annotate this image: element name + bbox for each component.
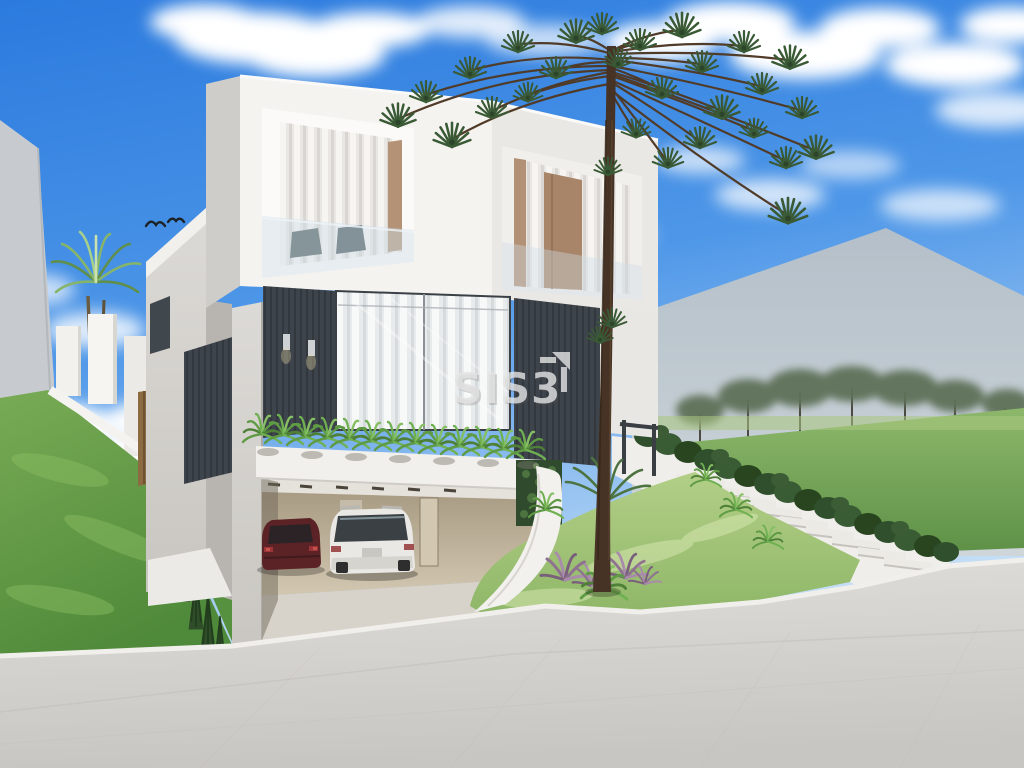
car-sedan	[257, 518, 325, 576]
window-bay-left	[262, 108, 414, 278]
car-suv	[326, 507, 418, 581]
watermark-text: SIS3	[452, 364, 561, 413]
wing-window-small	[150, 296, 170, 354]
garage-door	[420, 498, 438, 566]
render-image: SIS3 SIS3	[0, 0, 1024, 768]
scene-canvas: SIS3 SIS3	[0, 0, 1024, 768]
house-left-face	[206, 76, 240, 308]
lawn-highlight	[650, 416, 1024, 430]
dark-panel-left	[263, 286, 336, 438]
